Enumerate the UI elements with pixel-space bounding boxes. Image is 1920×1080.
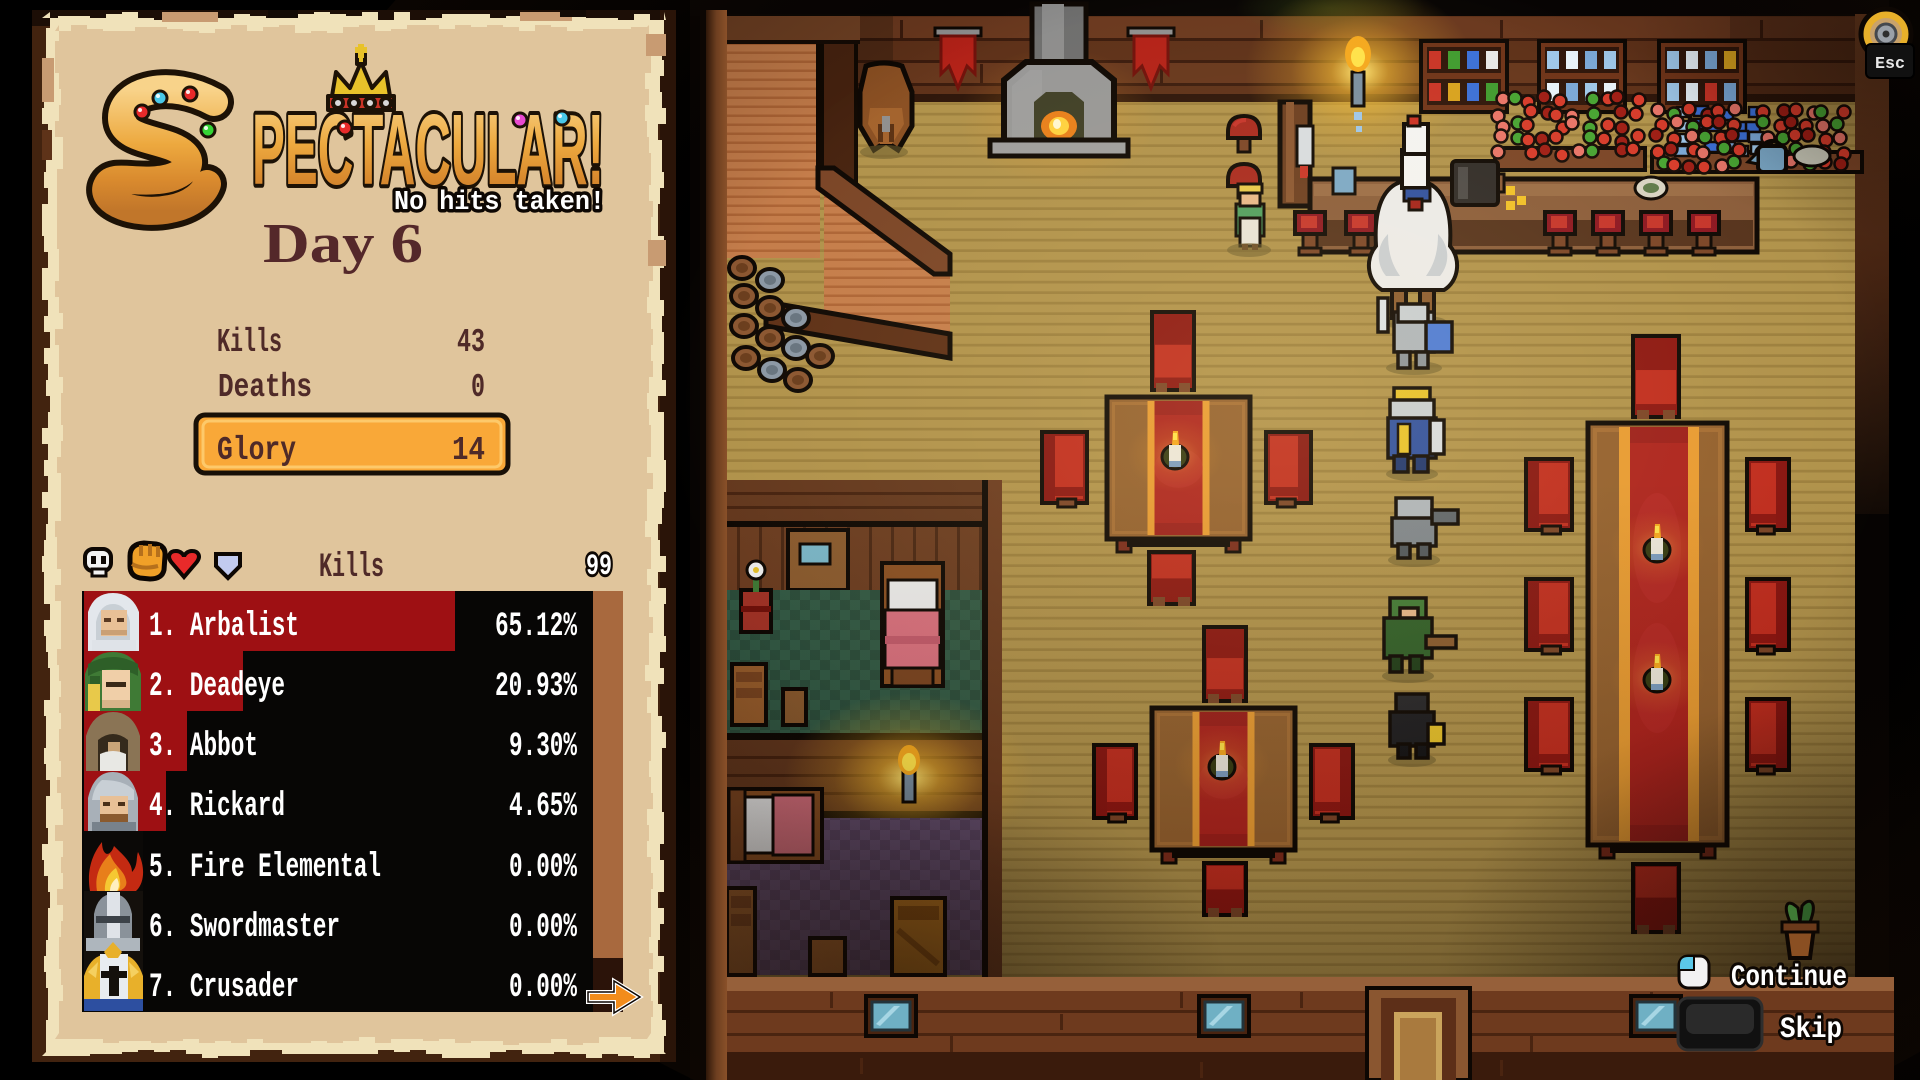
svg-text:9.30%: 9.30% [509, 728, 577, 766]
svg-text:65.12%: 65.12% [495, 608, 577, 646]
svg-text:3. Abbot: 3. Abbot [149, 728, 258, 766]
svg-text:0.00%: 0.00% [509, 969, 577, 1007]
svg-text:Glory: Glory [217, 432, 296, 469]
svg-text:Esc: Esc [1875, 55, 1905, 74]
svg-text:Skip: Skip [1780, 1013, 1842, 1047]
svg-text:1. Arbalist: 1. Arbalist [149, 608, 299, 646]
svg-text:Continue: Continue [1731, 961, 1847, 995]
svg-text:0.00%: 0.00% [509, 909, 577, 947]
svg-text:99: 99 [586, 550, 612, 584]
svg-text:14: 14 [452, 432, 485, 469]
svg-text:5. Fire Elemental: 5. Fire Elemental [149, 849, 381, 887]
svg-text:6. Swordmaster: 6. Swordmaster [149, 909, 340, 947]
svg-text:Day 6: Day 6 [263, 213, 423, 275]
svg-text:20.93%: 20.93% [495, 668, 577, 706]
svg-text:Kills: Kills [319, 549, 384, 587]
svg-text:No hits taken!: No hits taken! [394, 188, 605, 218]
svg-text:0.00%: 0.00% [509, 849, 577, 887]
svg-text:7. Crusader: 7. Crusader [149, 969, 299, 1007]
svg-text:0: 0 [471, 369, 485, 406]
svg-text:4.65%: 4.65% [509, 788, 577, 826]
svg-text:Kills: Kills [217, 324, 282, 361]
svg-text:4. Rickard: 4. Rickard [149, 788, 285, 826]
svg-text:2. Deadeye: 2. Deadeye [149, 668, 285, 706]
svg-text:Deaths: Deaths [218, 369, 312, 406]
svg-text:43: 43 [457, 324, 485, 361]
